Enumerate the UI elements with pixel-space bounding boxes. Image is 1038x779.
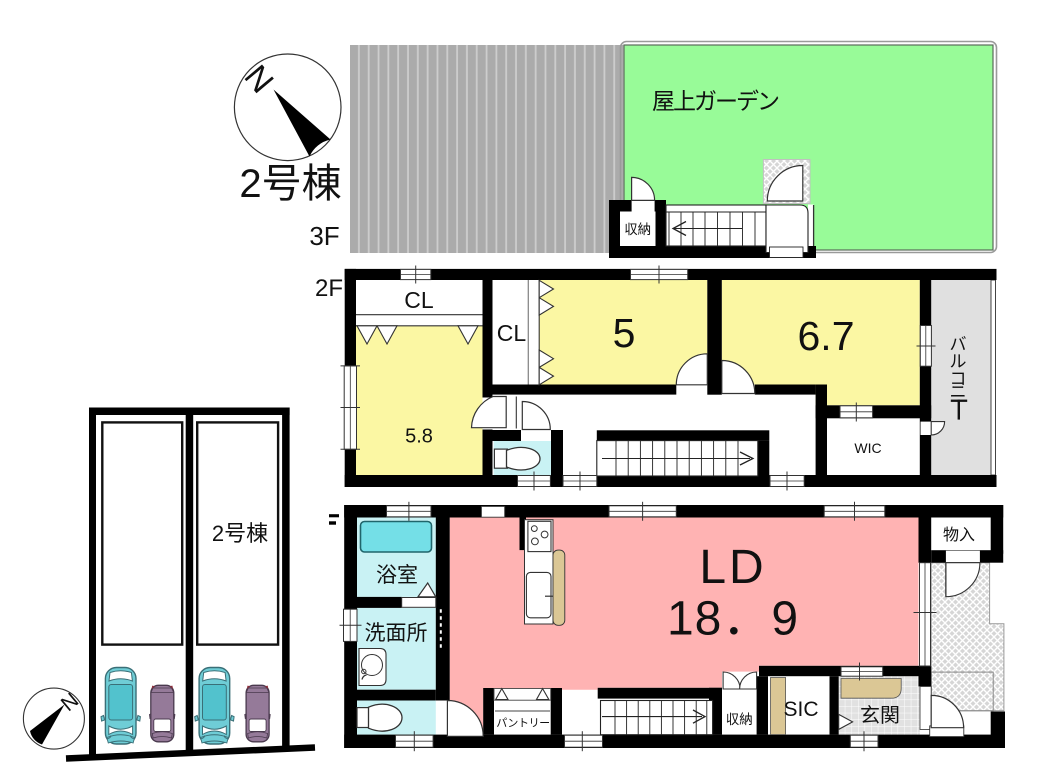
svg-text:洗面所: 洗面所 bbox=[365, 622, 428, 645]
svg-text:WIC: WIC bbox=[854, 440, 881, 456]
svg-text:2号棟: 2号棟 bbox=[212, 521, 268, 546]
svg-text:5.8: 5.8 bbox=[405, 426, 433, 448]
svg-text:収納: 収納 bbox=[726, 712, 753, 727]
svg-text:6.7: 6.7 bbox=[798, 313, 855, 359]
svg-text:2F: 2F bbox=[315, 275, 343, 302]
svg-text:ル: ル bbox=[950, 352, 967, 371]
svg-text:パントリー: パントリー bbox=[496, 717, 550, 730]
svg-text:ニ: ニ bbox=[950, 383, 967, 402]
svg-text:3F: 3F bbox=[309, 221, 339, 251]
svg-text:5: 5 bbox=[613, 310, 636, 356]
svg-text:浴室: 浴室 bbox=[376, 564, 418, 587]
svg-text:SIC: SIC bbox=[783, 698, 818, 721]
svg-text:CL: CL bbox=[497, 320, 527, 346]
svg-text:LD: LD bbox=[699, 541, 766, 594]
svg-text:屋上ガーデン: 屋上ガーデン bbox=[652, 88, 779, 114]
svg-text:玄関: 玄関 bbox=[860, 704, 900, 727]
svg-text:物入: 物入 bbox=[943, 526, 975, 544]
svg-text:2号棟: 2号棟 bbox=[239, 162, 341, 206]
svg-text:18．9: 18．9 bbox=[667, 593, 799, 646]
svg-text:収納: 収納 bbox=[624, 222, 651, 237]
svg-text:CL: CL bbox=[404, 287, 434, 313]
